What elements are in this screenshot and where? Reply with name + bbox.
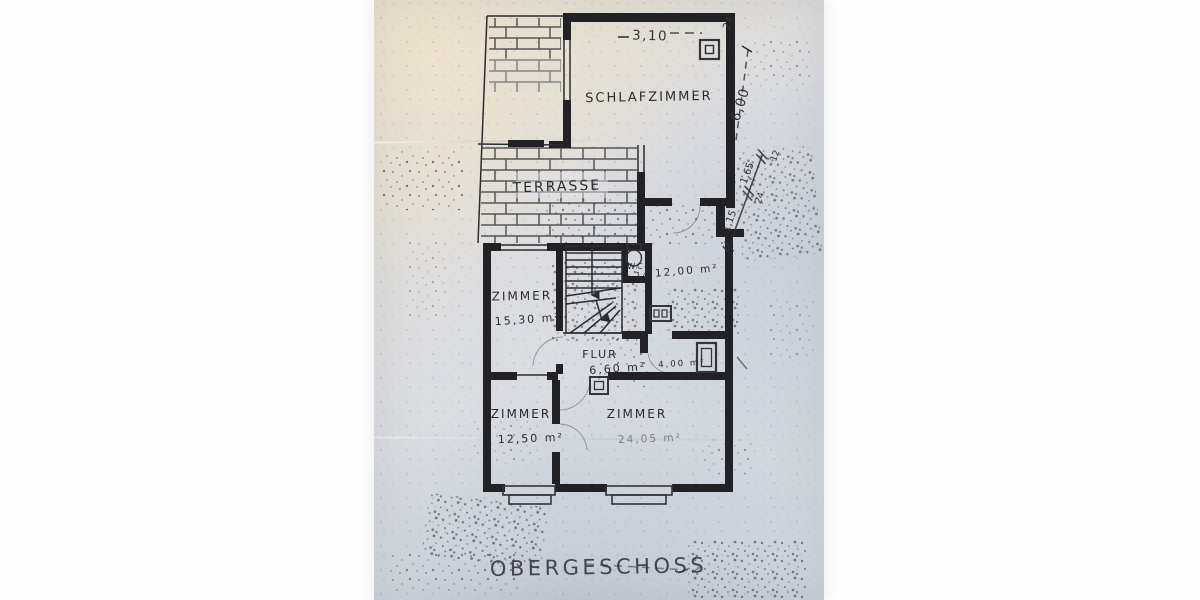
zimmer-sw-area: 12,50 m² [498,431,565,446]
dim-top-width: 3,10 [632,28,668,45]
wc-area: 1,14 [625,271,650,280]
schlafzimmer-label: SCHLAFZIMMER [585,89,713,106]
terrace: TERRASSE [481,147,637,243]
title-text: OBERGESCHOSS [490,553,708,581]
floor-plan-drawing: TERRASSE SCHLAFZIMMER [0,0,1200,600]
zimmer-se-label: ZIMMER [607,407,667,421]
terrasse-label: TERRASSE [511,177,601,196]
gable-brick-hatch [489,18,561,92]
photo-of-floorplan: TERRASSE SCHLAFZIMMER [0,0,1200,600]
zimmer-nw-label: ZIMMER [492,288,553,303]
drawing-title: OBERGESCHOSS [490,553,708,581]
flur-label: FLUR [582,348,618,361]
zimmer-se-area: 24,05 m² [618,432,682,446]
zimmer-sw-label: ZIMMER [491,407,551,421]
wc-label: WC [627,262,645,271]
